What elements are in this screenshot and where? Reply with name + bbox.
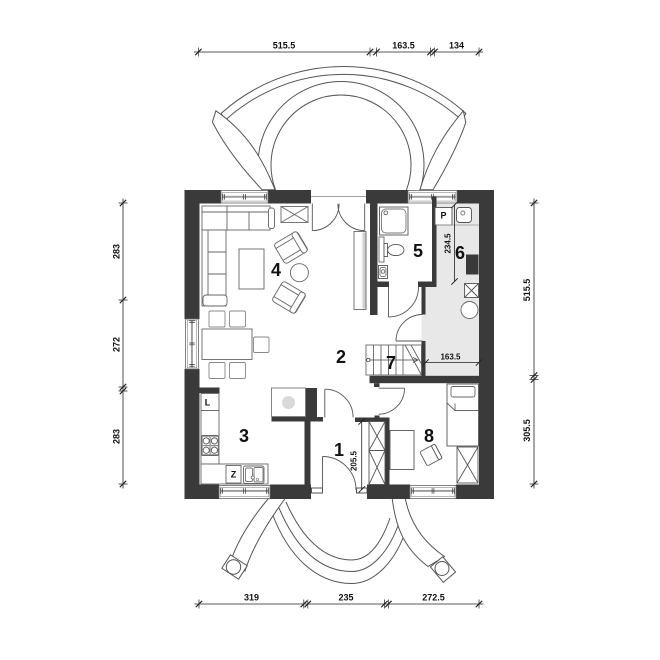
svg-text:134: 134 [449, 41, 464, 51]
svg-text:272.5: 272.5 [422, 593, 445, 603]
svg-text:7: 7 [386, 353, 396, 373]
svg-text:235: 235 [338, 593, 353, 603]
svg-text:1: 1 [334, 440, 344, 460]
svg-text:5: 5 [413, 241, 423, 261]
svg-text:205.5: 205.5 [350, 450, 359, 471]
svg-text:319: 319 [244, 593, 259, 603]
svg-text:272: 272 [112, 337, 122, 352]
svg-text:234.5: 234.5 [444, 233, 453, 254]
svg-text:515.5: 515.5 [273, 41, 296, 51]
svg-text:2: 2 [336, 347, 346, 367]
svg-text:4: 4 [271, 260, 281, 280]
svg-text:8: 8 [424, 426, 434, 446]
svg-text:305.5: 305.5 [522, 419, 532, 442]
svg-text:L: L [205, 398, 211, 408]
svg-text:Z: Z [231, 470, 237, 480]
svg-text:515.5: 515.5 [522, 279, 532, 302]
svg-text:6: 6 [455, 243, 465, 263]
svg-text:3: 3 [239, 426, 249, 446]
svg-text:163.5: 163.5 [392, 41, 415, 51]
svg-text:283: 283 [112, 429, 122, 444]
svg-text:283: 283 [112, 244, 122, 259]
svg-text:163.5: 163.5 [440, 353, 461, 362]
svg-text:P: P [440, 211, 446, 221]
